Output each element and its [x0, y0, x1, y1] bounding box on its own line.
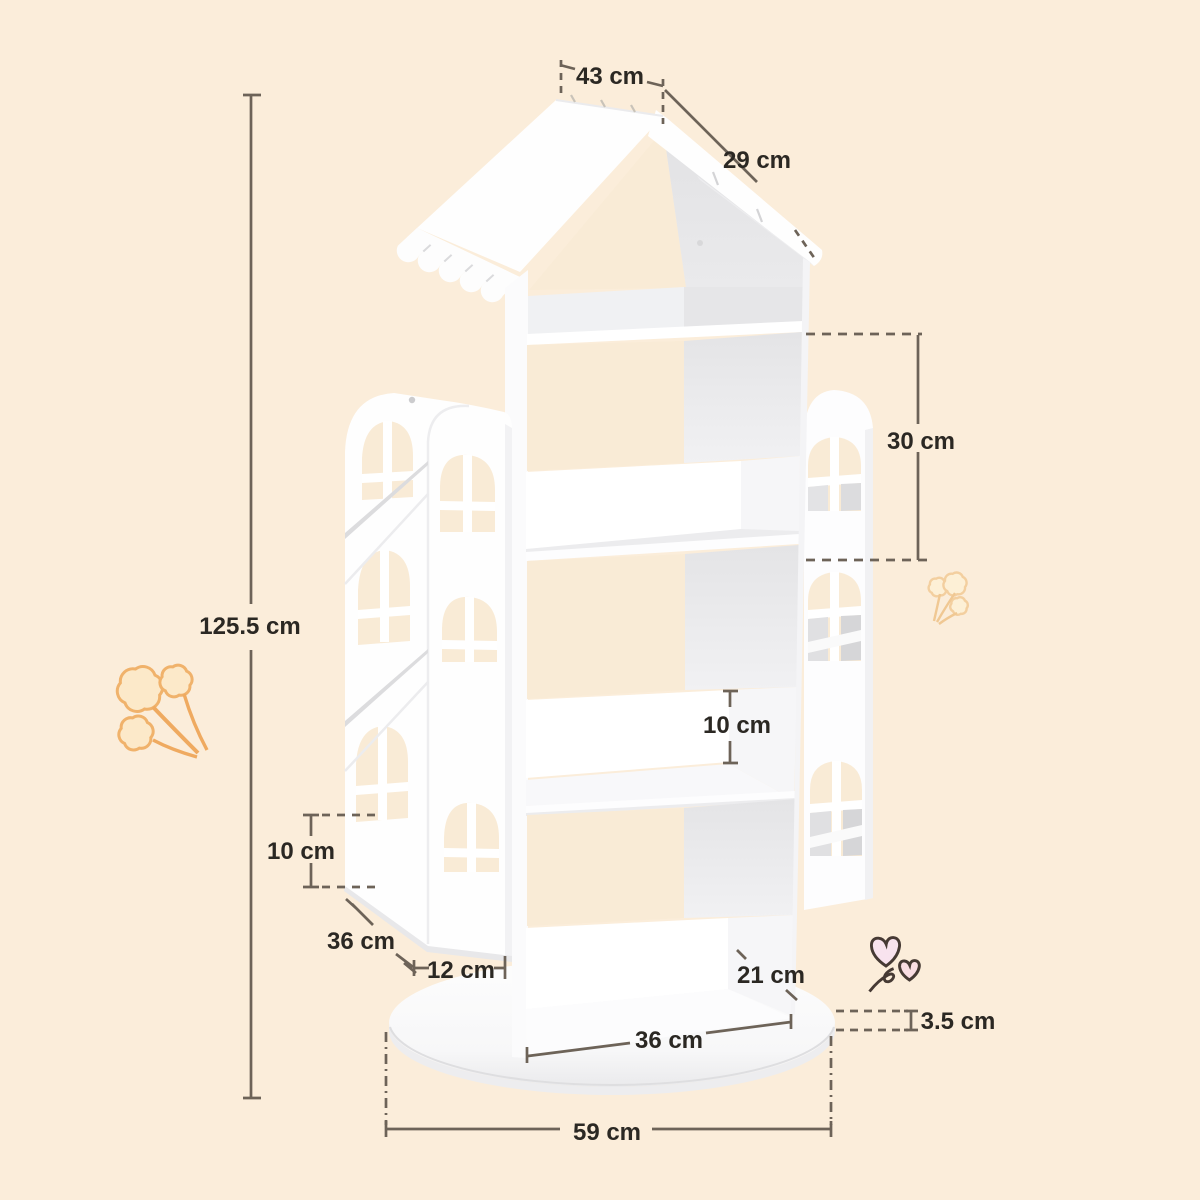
svg-text:12 cm: 12 cm	[427, 957, 495, 984]
svg-text:10 cm: 10 cm	[267, 838, 335, 865]
svg-text:10 cm: 10 cm	[703, 712, 771, 739]
svg-text:125.5 cm: 125.5 cm	[199, 613, 300, 640]
svg-text:30 cm: 30 cm	[887, 428, 955, 455]
svg-text:21 cm: 21 cm	[737, 962, 805, 989]
svg-text:36 cm: 36 cm	[327, 928, 395, 955]
svg-text:36 cm: 36 cm	[635, 1027, 703, 1054]
svg-text:3.5 cm: 3.5 cm	[921, 1008, 996, 1035]
svg-text:29 cm: 29 cm	[723, 147, 791, 174]
svg-text:43 cm: 43 cm	[576, 63, 644, 90]
svg-text:59 cm: 59 cm	[573, 1119, 641, 1146]
